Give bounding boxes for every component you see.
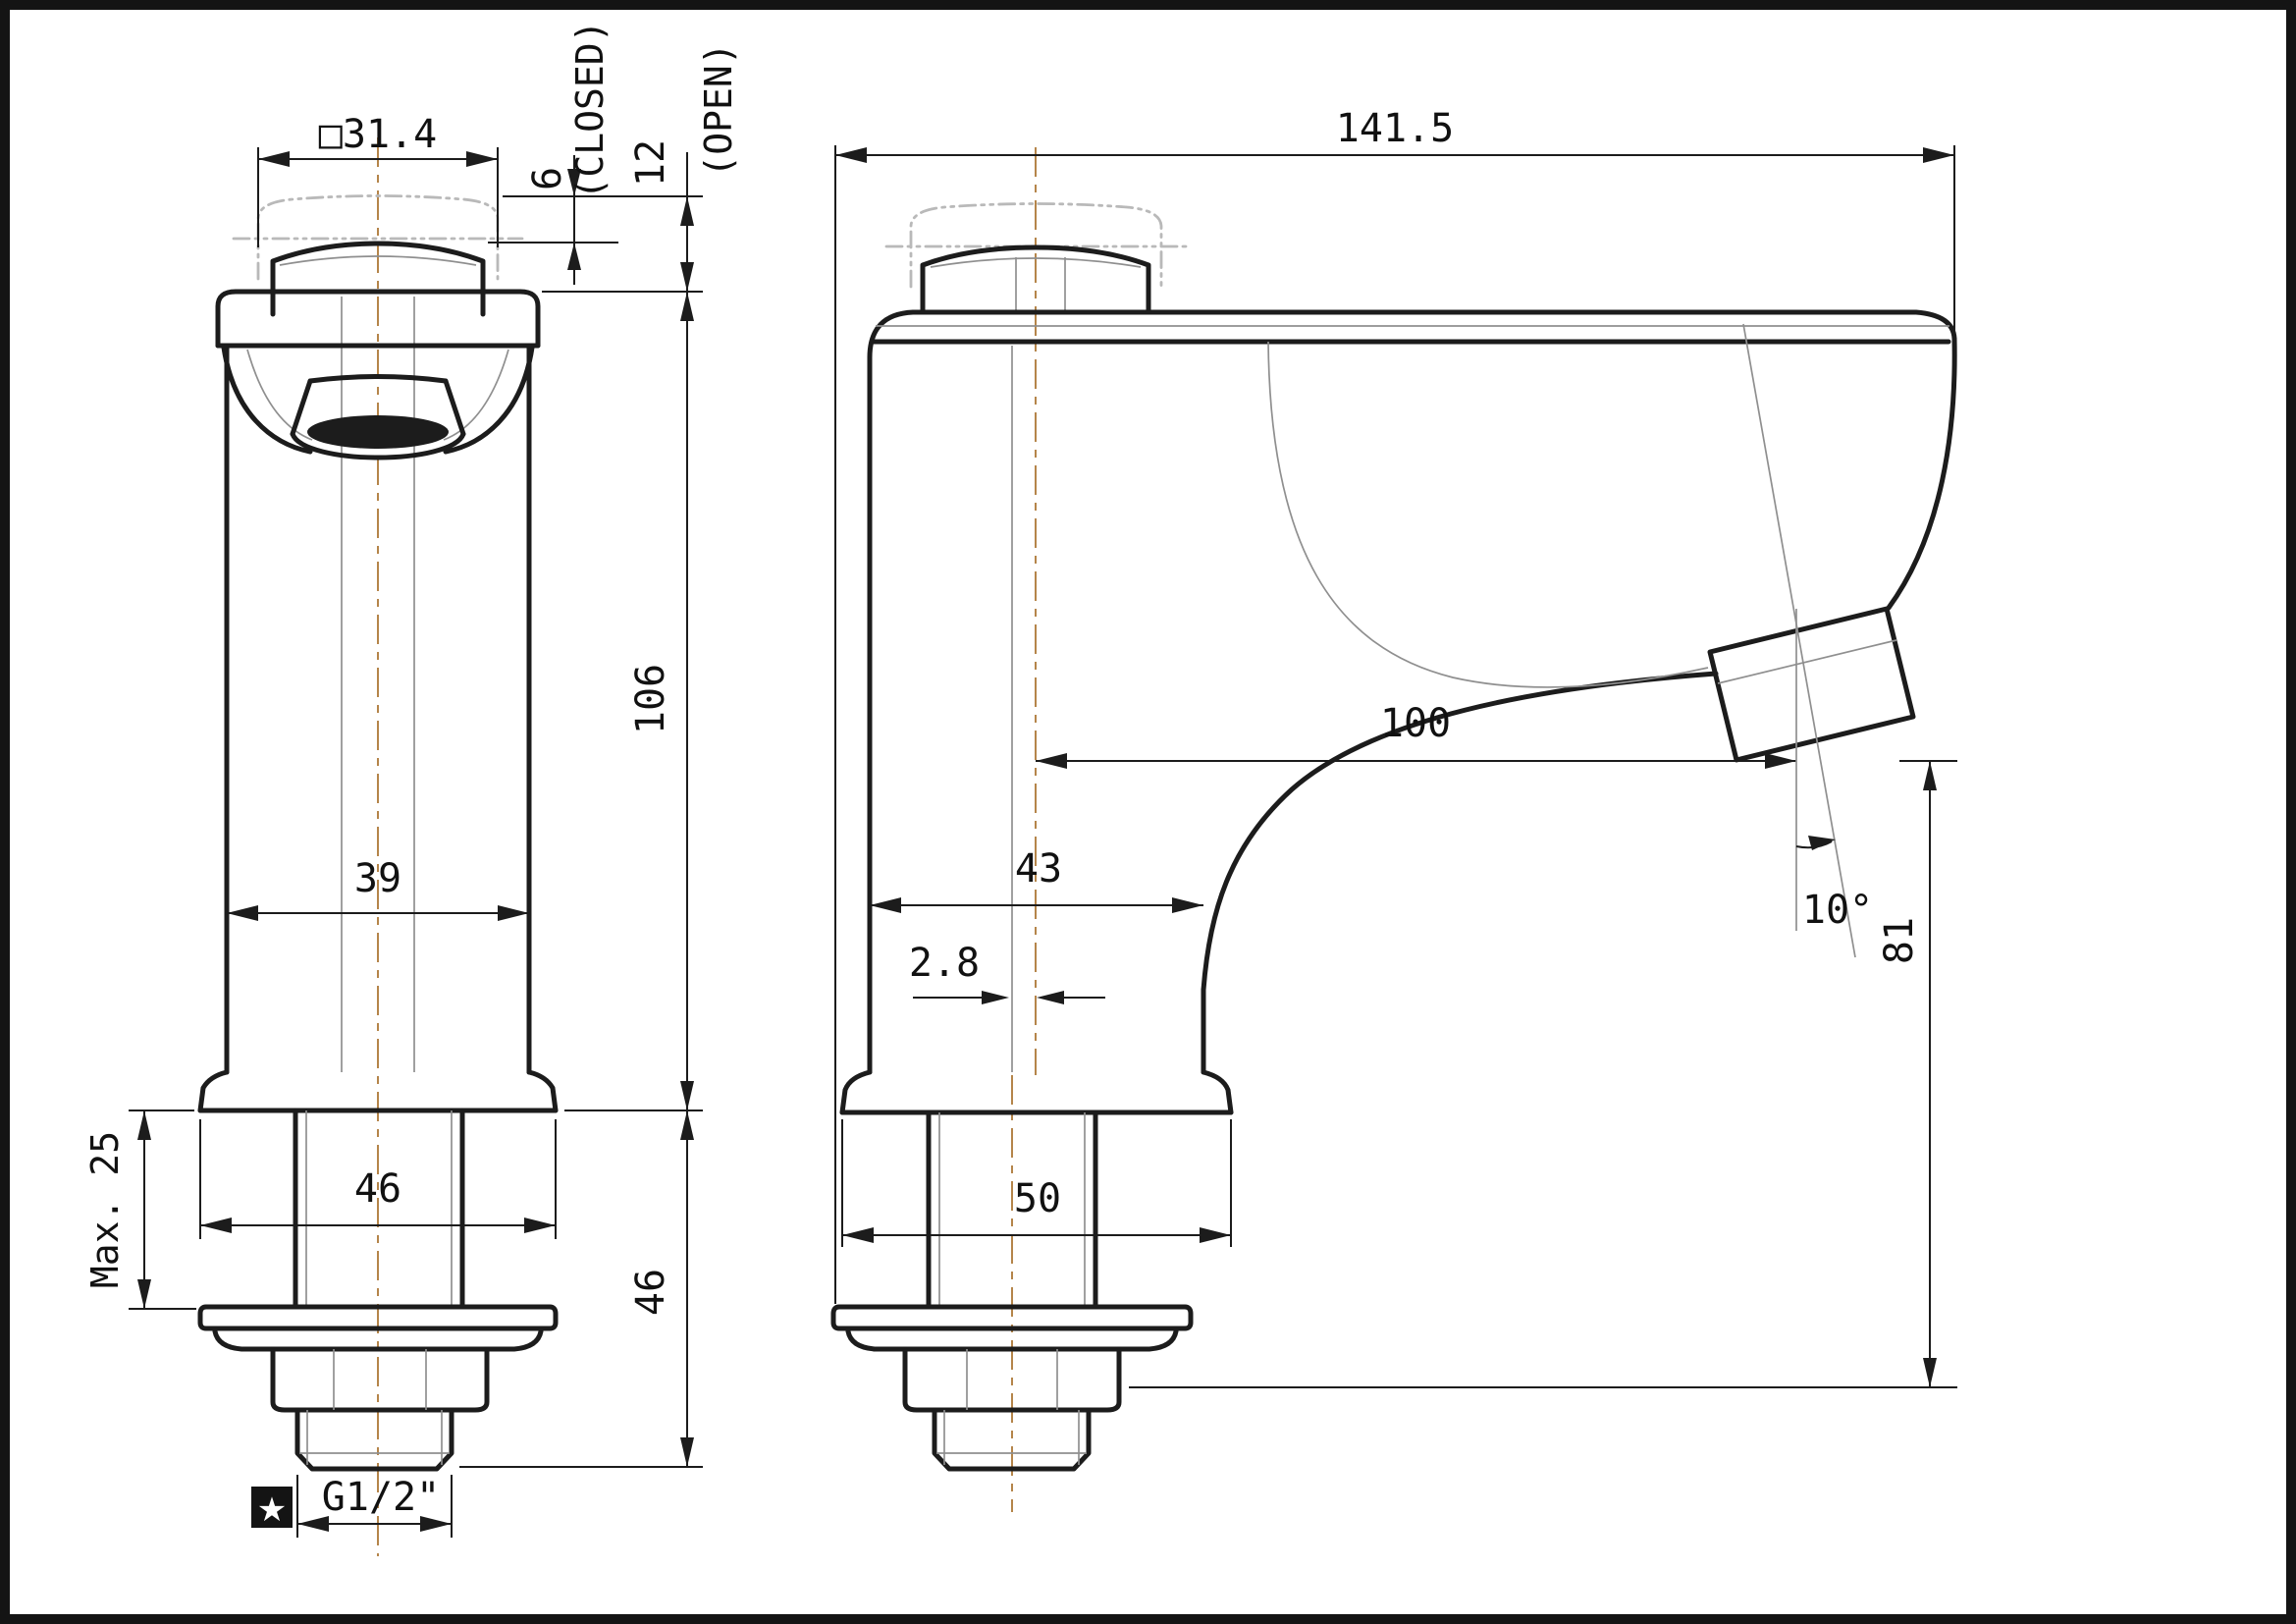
front-aerator-opening <box>307 415 449 449</box>
front-locknut <box>273 1349 487 1410</box>
front-view-dimensions: □31.4 6 (CLOSED) 12 (OPEN) 106 46 39 <box>83 20 740 1538</box>
dim-max-mount-thickness: Max. 25 <box>83 1131 127 1288</box>
dim-closed-offset: 6 <box>525 167 570 190</box>
dim-overall-length: 141.5 <box>1336 106 1454 151</box>
dim-spout-reach: 100 <box>1380 701 1451 746</box>
dim-thread-spec: G1/2" <box>322 1475 440 1520</box>
dim-body-height: 106 <box>628 664 673 734</box>
dim-center-offset: 2.8 <box>909 941 980 986</box>
dim-outlet-height: 81 <box>1877 917 1922 964</box>
front-view <box>200 137 556 1556</box>
dim-closed-label: (CLOSED) <box>568 20 612 199</box>
star-icon-glyph: ★ <box>257 1492 287 1529</box>
side-outlet <box>1710 609 1913 760</box>
dim-open-offset: 12 <box>628 139 673 187</box>
dim-base-width: 46 <box>354 1166 401 1212</box>
dim-outlet-angle: 10° <box>1802 888 1873 933</box>
faucet-dimension-drawing: □31.4 6 (CLOSED) 12 (OPEN) 106 46 39 <box>0 0 2296 1624</box>
dim-body-width: 39 <box>354 856 401 901</box>
dim-body-depth: 43 <box>1015 846 1062 892</box>
front-thread-pipe <box>297 1410 452 1469</box>
dim-open-label: (OPEN) <box>697 42 740 177</box>
dim-button-width: □31.4 <box>319 112 437 157</box>
dim-base-depth: 50 <box>1014 1176 1061 1221</box>
side-view <box>833 147 1954 1512</box>
drawing-sheet: □31.4 6 (CLOSED) 12 (OPEN) 106 46 39 <box>0 0 2296 1624</box>
dim-shank-length: 46 <box>628 1269 673 1316</box>
